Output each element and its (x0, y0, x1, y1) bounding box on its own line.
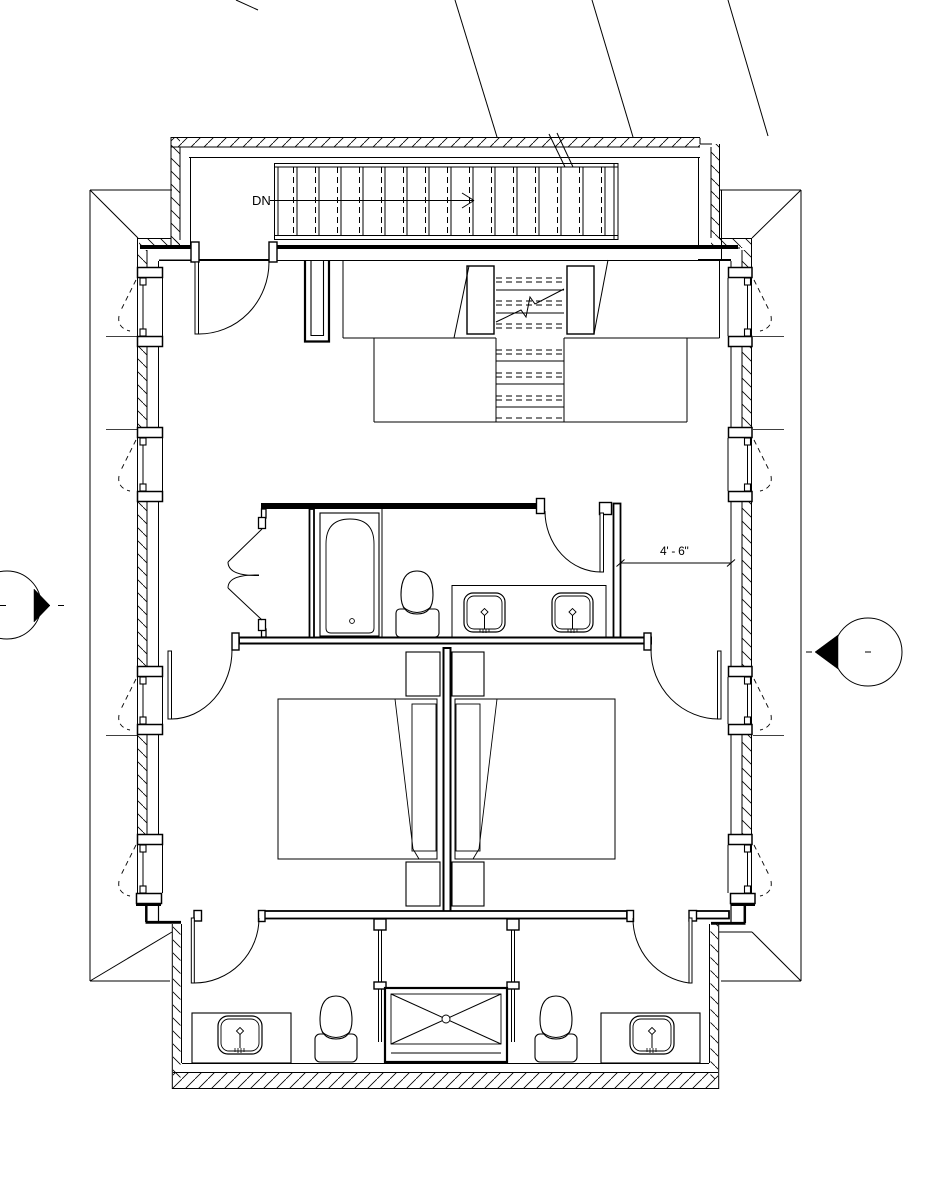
svg-text:4' - 6": 4' - 6" (660, 544, 689, 558)
svg-text:DN: DN (252, 193, 271, 208)
